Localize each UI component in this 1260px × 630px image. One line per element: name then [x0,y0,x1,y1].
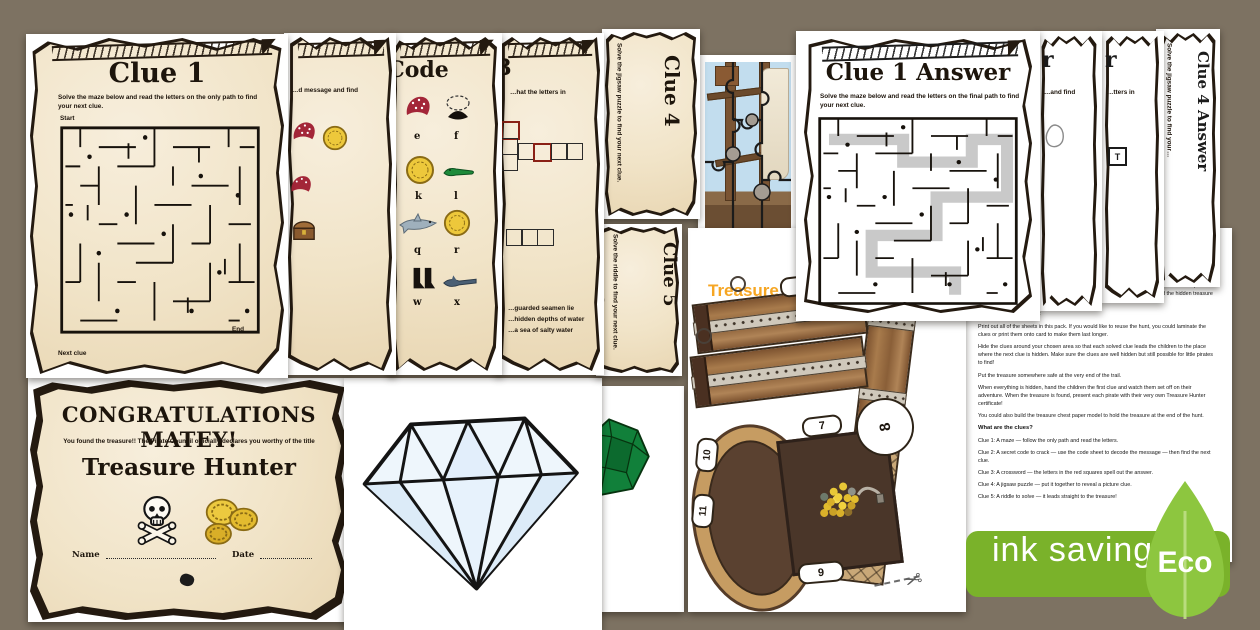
crossword-cell [566,143,583,160]
clue4-answer-sheet: Solve the jigsaw puzzle to find your… Cl… [1156,29,1220,287]
staple-ring [696,328,712,344]
answer-snippet: …tters in [1107,89,1135,98]
riddle-line: …hidden depths of water [508,316,594,325]
pirate-bandana-icon [403,93,433,119]
riddle-line: …guarded seamen lie [508,305,594,314]
code-letter: r [454,245,459,256]
jigsaw-lines [705,62,791,228]
clue2-snippet: …d message and find [292,87,388,96]
eco-label: Eco [1146,546,1224,580]
code-letter: w [413,297,422,308]
jigsaw-picture [705,62,791,228]
clue1-title: Clue 1 [26,58,288,89]
chest-tab: 9 [797,560,845,585]
crossword-cell [533,143,552,162]
crossword-row [518,143,582,162]
parchment-roll-edge [400,41,490,59]
diamond-illustration [348,384,595,620]
organiser-paragraph: Print out all of the sheets in this pack… [978,323,1218,339]
code-letter: x [454,297,460,308]
name-label: Name [72,550,100,560]
clue4-title: Clue 4 [660,55,684,205]
sketch-icon [1044,123,1066,149]
organiser-clue-line: Clue 1: A maze — follow the only path an… [978,437,1218,445]
date-line [260,550,312,559]
organiser-clue-line: Clue 3: A crossword — the letters in the… [978,469,1218,477]
jigsaw-sheet [698,55,804,233]
scissors-icon: ✂ [900,564,925,594]
crossword-row [506,229,552,246]
product-preview-collage: Clue 1 Solve the maze below and read the… [0,0,1260,630]
clue3-title-fragment: 3 [496,55,574,81]
crossword-cell [501,121,520,140]
treasure-chest-icon [292,219,316,243]
ink-saving-label: ink saving [992,531,1153,597]
clue4-instructions: Solve the jigsaw puzzle to find your nex… [614,43,623,203]
gold-coin-icon [405,155,435,185]
answer-title-fragment: r [1042,47,1054,73]
clue4-answer-instructions: Solve the jigsaw puzzle to find your… [1164,43,1173,271]
code-title: Code [388,57,458,83]
paper [1108,39,1156,295]
answer-title-fragment: r [1105,47,1117,73]
swordfish-icon [440,273,478,293]
riddle-line: …a sea of salty water [508,327,594,336]
panel-cap [692,357,712,406]
name-field: Name [72,550,222,560]
gold-coin-icon [443,209,471,237]
clue3-answer-sheet: r …tters in T [1100,31,1164,303]
clue3-snippet: …hat the letters in [510,89,596,98]
crossword-cell [537,229,554,246]
clue1-answer-title: Clue 1 Answer [796,59,1040,86]
organiser-paragraph: You could also build the treasure chest … [978,412,1218,420]
answer-snippet: …and find [1044,89,1075,98]
crocodile-icon [442,163,476,181]
parchment-roll-edge [298,41,384,58]
shark-icon [398,211,438,235]
code-sheet: Code e f k l q r [388,33,502,375]
certificate-subtitle: You found the treasure!! The Pirate Coun… [56,438,322,447]
gold-coins-icon [198,496,264,550]
maze-start-label: Start [60,115,75,122]
clue2-sheet: …d message and find [284,33,396,375]
paper [1044,39,1094,303]
metal-strap [691,355,867,389]
pirate-boots-icon [408,265,436,295]
answer-letter-box: T [1108,147,1127,166]
certificate-award-title: Treasure Hunter [28,454,350,481]
clue5-title: Clue 5 [659,242,680,368]
clue1-footer: Next clue [58,350,86,357]
clue3-sheet: 3 …hat the letters in …guarded seamen li… [496,33,604,375]
organiser-paragraph: When everything is hidden, hand the chil… [978,384,1218,408]
clue2-answer-sheet: r …and find [1036,31,1102,311]
name-line [106,550,216,559]
maze-end-label: End [232,326,244,333]
certificate-sheet: CONGRATULATIONS MATEY! You found the tre… [28,378,350,622]
chest-tab: 11 [691,493,716,529]
date-field: Date [232,550,318,560]
code-letter: l [454,191,458,202]
clue5-sheet: Solve the riddle to find your next clue.… [596,224,682,376]
pirate-bandana-icon [290,119,318,143]
clue1-sheet: Clue 1 Solve the maze below and read the… [26,34,288,378]
clue1-answer-instructions: Solve the maze below and read the letter… [820,93,1020,110]
organiser-paragraph: Hide the clues around your chosen area s… [978,343,1218,367]
gold-coin-icon [322,125,348,151]
crossword-cell [501,154,518,171]
diamond-sheet [344,378,602,630]
clue4-answer-title: Clue 4 Answer [1194,51,1212,271]
code-letter: q [414,245,421,256]
skull-crossbones-icon [130,490,184,548]
maze-figure [58,124,262,336]
solved-maze-figure [816,115,1020,307]
organiser-clue-line: Clue 2: A secret code to crack — use the… [978,449,1218,465]
organiser-heading: What are the clues? [978,424,1218,433]
date-label: Date [232,550,254,560]
pirate-hat-icon [443,95,473,123]
parchment [395,40,495,368]
clue1-answer-sheet: Clue 1 Answer Solve the maze below and r… [796,31,1040,321]
code-letter: e [414,131,420,142]
treasure-coins [834,493,843,502]
chest-tab: 10 [695,437,720,473]
clue5-instructions: Solve the riddle to find your next clue. [610,234,619,364]
organiser-paragraph: Put the treasure somewhere safe at the v… [978,372,1218,380]
code-letter: f [454,131,458,142]
treasure-hook-icon [853,480,886,507]
code-letter: k [415,191,422,202]
pirate-bandana-icon [288,173,314,195]
staple-ring [730,276,746,292]
clue4-sheet: Solve the jigsaw puzzle to find your nex… [602,29,700,219]
clue1-instructions: Solve the maze below and read the letter… [58,94,264,111]
